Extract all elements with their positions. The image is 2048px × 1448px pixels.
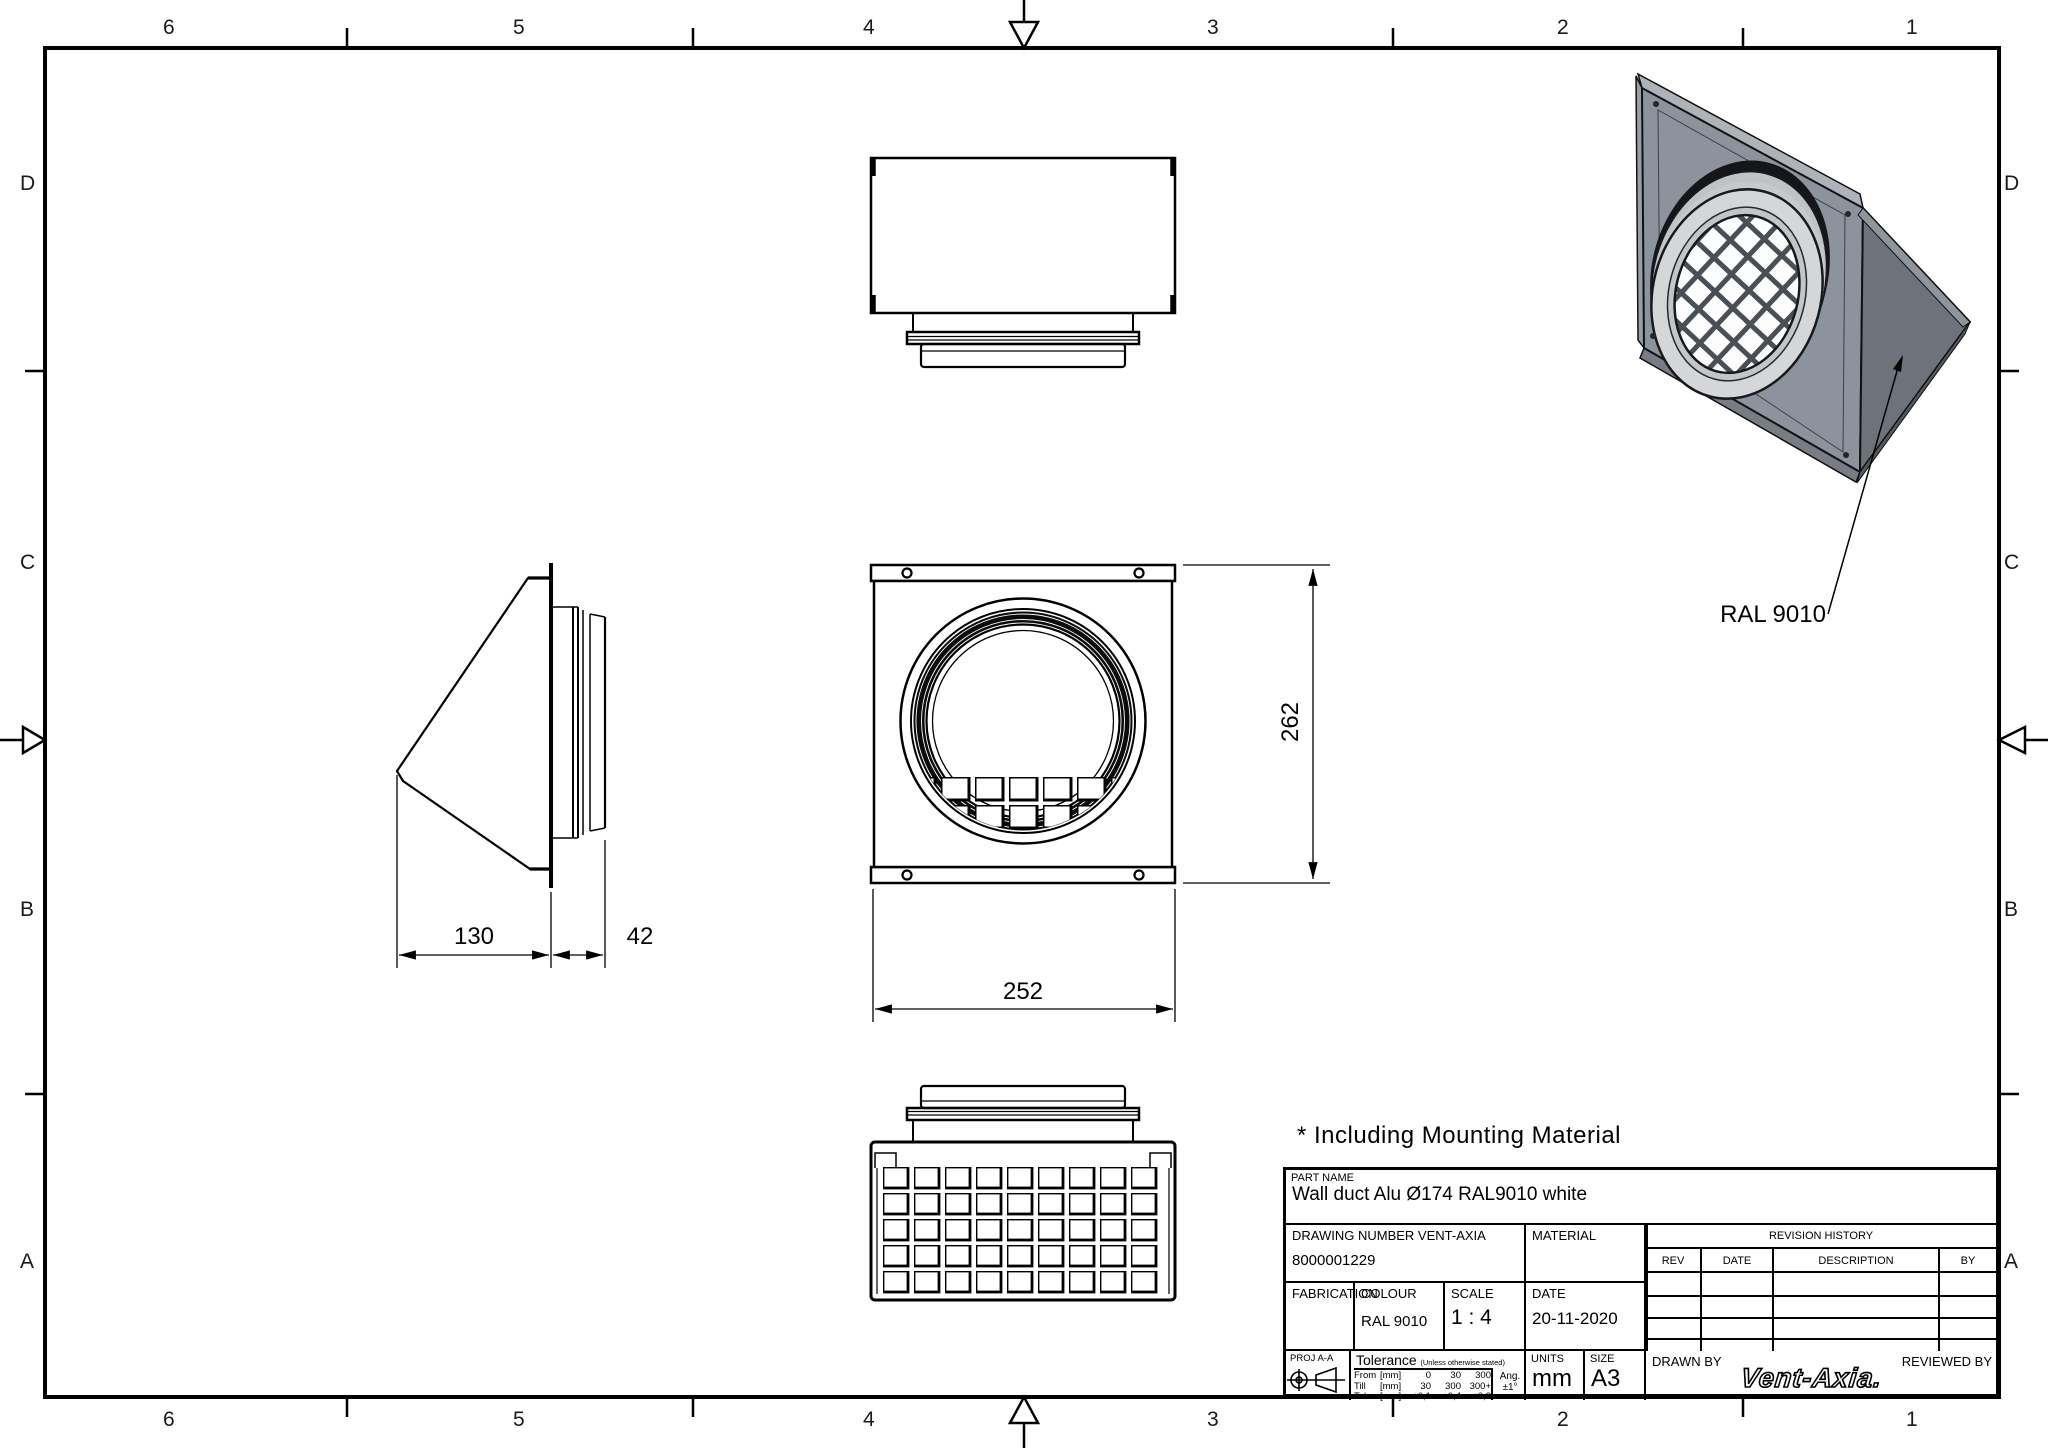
dim-spigot-depth: 42 (627, 923, 654, 950)
zone-row-c-left: C (20, 551, 35, 575)
signature-cell: DRAWN BY REVIEWED BY Vent-Axia. (1646, 1351, 1996, 1400)
revision-history-table: REVISION HISTORY REV DATE DESCRIPTION BY (1646, 1225, 1996, 1351)
zone-col-2-top: 2 (1557, 16, 1569, 40)
zone-col-4-bottom: 4 (863, 1408, 875, 1432)
top-view (871, 158, 1175, 367)
zone-row-c-right: C (2004, 551, 2019, 575)
dim-hood-depth: 130 (454, 923, 494, 950)
drawing-number-label: DRAWING NUMBER VENT-AXIA (1286, 1225, 1524, 1243)
zone-col-6-bottom: 6 (163, 1408, 175, 1432)
projection-label: PROJ A-A (1286, 1351, 1349, 1364)
angle-tolerance-cell: Ang. ±1° (1491, 1368, 1527, 1400)
zone-col-1-top: 1 (1906, 16, 1918, 40)
drawing-number-cell: DRAWING NUMBER VENT-AXIA 8000001229 (1286, 1225, 1526, 1283)
vent-axia-logo: Vent-Axia. (1739, 1363, 1883, 1394)
zone-col-1-bottom: 1 (1906, 1408, 1918, 1432)
colour-label: COLOUR (1355, 1283, 1443, 1301)
units-label: UNITS (1526, 1351, 1583, 1365)
units-value: mm (1526, 1365, 1583, 1393)
dim-front-height: 262 (1277, 702, 1304, 742)
scale-value: 1 : 4 (1445, 1306, 1524, 1330)
by-col-header: BY (1940, 1249, 1996, 1273)
size-value: A3 (1585, 1365, 1644, 1393)
mounting-note: * Including Mounting Material (1297, 1122, 1621, 1150)
date-cell: DATE 20-11-2020 (1526, 1283, 1646, 1351)
zone-row-d-left: D (20, 172, 35, 196)
fabrication-cell: FABRICATION (1286, 1283, 1355, 1351)
angle-label: Ang. (1493, 1368, 1527, 1382)
part-name-value: Wall duct Alu Ø174 RAL9010 white (1286, 1184, 1996, 1206)
dim-front-width: 252 (1003, 978, 1043, 1005)
zone-col-3-bottom: 3 (1207, 1408, 1219, 1432)
zone-col-4-top: 4 (863, 16, 875, 40)
zone-col-3-top: 3 (1207, 16, 1219, 40)
reviewed-by-label: REVIEWED BY (1902, 1351, 1992, 1369)
revision-empty-row (1646, 1340, 1996, 1351)
scale-cell: SCALE 1 : 4 (1445, 1283, 1526, 1351)
rev-col-header: REV (1646, 1249, 1702, 1273)
zone-row-d-right: D (2004, 172, 2019, 196)
revision-header-row: REV DATE DESCRIPTION BY (1646, 1247, 1996, 1273)
colour-cell: COLOUR RAL 9010 (1355, 1283, 1445, 1351)
revision-empty-row (1646, 1273, 1996, 1297)
revision-history-title: REVISION HISTORY (1646, 1225, 1996, 1247)
title-block: PART NAME Wall duct Alu Ø174 RAL9010 whi… (1283, 1167, 1999, 1397)
iso-view (1626, 74, 1970, 483)
tolerance-cell: Tolerance (Unless otherwise stated) From… (1351, 1351, 1526, 1400)
size-cell: SIZE A3 (1585, 1351, 1646, 1400)
scale-label: SCALE (1445, 1283, 1524, 1301)
date-value: 20-11-2020 (1526, 1309, 1644, 1329)
zone-col-6-top: 6 (163, 16, 175, 40)
units-cell: UNITS mm (1526, 1351, 1585, 1400)
tolerance-label: Tolerance (1356, 1352, 1417, 1368)
bottom-view (871, 1086, 1175, 1300)
date-label: DATE (1526, 1283, 1644, 1301)
material-cell: MATERIAL (1526, 1225, 1646, 1283)
drawing-sheet: 262 252 130 42 (0, 0, 2048, 1448)
zone-row-a-left: A (20, 1250, 34, 1274)
bottom-grille (883, 1167, 1162, 1297)
drawing-number-value: 8000001229 (1286, 1252, 1524, 1269)
angle-value: ±1° (1493, 1382, 1527, 1393)
front-view (871, 565, 1175, 883)
side-view (397, 563, 605, 888)
material-label: MATERIAL (1526, 1225, 1644, 1243)
projection-cell: PROJ A-A (1286, 1351, 1351, 1400)
fabrication-label: FABRICATION (1286, 1283, 1353, 1301)
tolerance-note: (Unless otherwise stated) (1420, 1358, 1505, 1367)
description-col-header: DESCRIPTION (1774, 1249, 1940, 1273)
revision-empty-row (1646, 1297, 1996, 1319)
drawn-by-label: DRAWN BY (1646, 1351, 1722, 1369)
color-callout: RAL 9010 (1720, 601, 1826, 628)
zone-col-2-bottom: 2 (1557, 1408, 1569, 1432)
colour-value: RAL 9010 (1355, 1313, 1443, 1330)
zone-col-5-top: 5 (513, 16, 525, 40)
part-name-cell: PART NAME Wall duct Alu Ø174 RAL9010 whi… (1286, 1170, 1996, 1225)
first-angle-projection-icon (1286, 1364, 1346, 1396)
size-label: SIZE (1585, 1351, 1644, 1365)
zone-row-b-right: B (2004, 898, 2018, 922)
revision-empty-row (1646, 1319, 1996, 1340)
zone-row-b-left: B (20, 898, 34, 922)
zone-col-5-bottom: 5 (513, 1408, 525, 1432)
zone-row-a-right: A (2004, 1250, 2018, 1274)
part-name-label: PART NAME (1286, 1170, 1996, 1184)
date-col-header: DATE (1702, 1249, 1774, 1273)
tolerance-table: From [mm] 0 30 300 Till [mm] 30 300 300+… (1354, 1368, 1491, 1402)
